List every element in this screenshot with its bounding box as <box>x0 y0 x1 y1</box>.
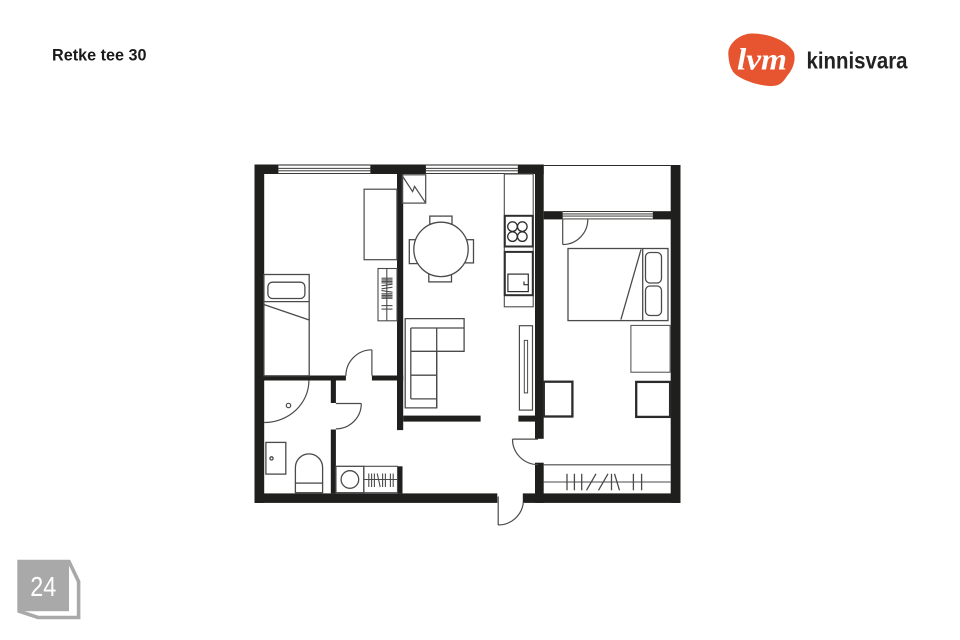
svg-text:lvm: lvm <box>737 42 787 77</box>
svg-text:kinnisvara: kinnisvara <box>807 48 908 74</box>
svg-text:Retke tee 30: Retke tee 30 <box>52 47 147 65</box>
svg-text:24: 24 <box>30 571 56 602</box>
